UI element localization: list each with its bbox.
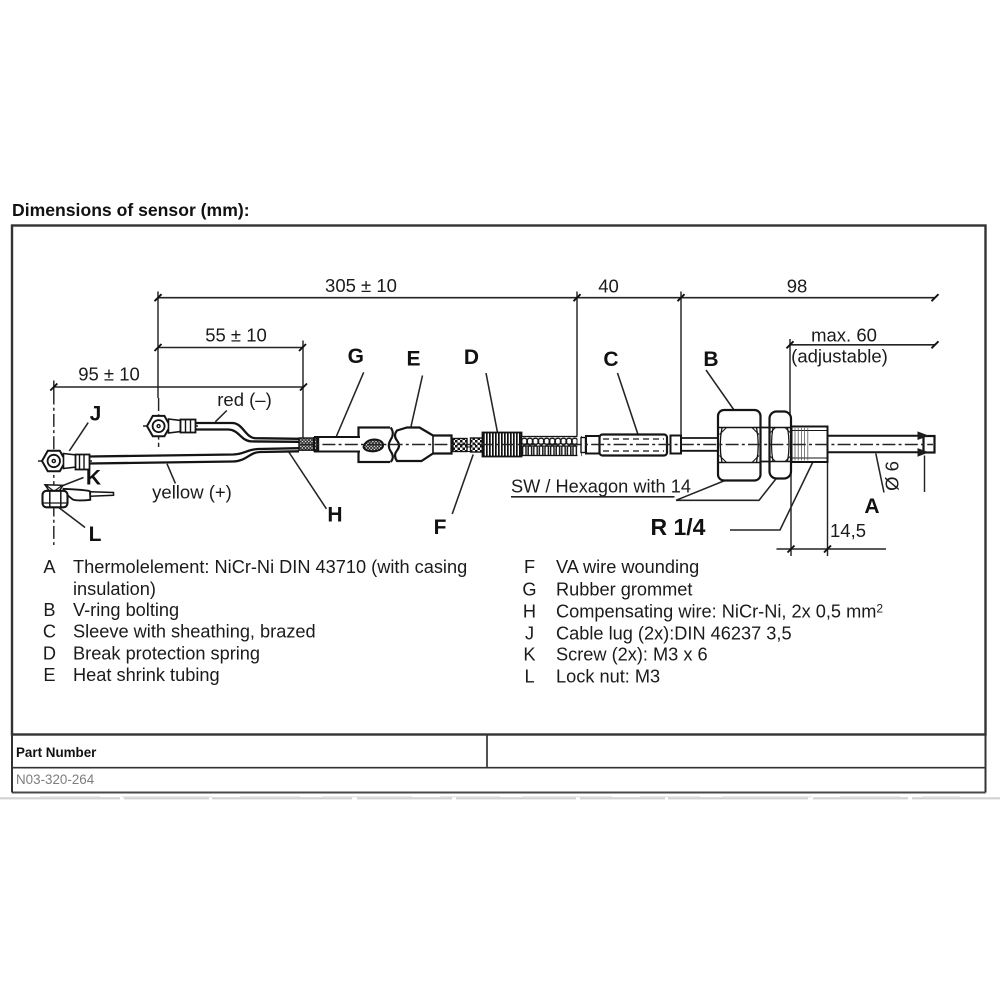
svg-text:(adjustable): (adjustable): [791, 346, 888, 367]
svg-text:98: 98: [787, 276, 808, 297]
svg-text:Cable lug (2x):DIN 46237 3,5: Cable lug (2x):DIN 46237 3,5: [556, 624, 792, 644]
svg-text:SW / Hexagon with 14: SW / Hexagon with 14: [511, 477, 691, 497]
svg-text:R 1/4: R 1/4: [651, 514, 706, 540]
svg-text:V-ring bolting: V-ring bolting: [73, 600, 179, 620]
svg-text:K: K: [523, 645, 535, 665]
svg-text:J: J: [525, 624, 534, 644]
svg-text:95 ± 10: 95 ± 10: [78, 364, 140, 385]
svg-text:B: B: [703, 348, 718, 371]
svg-text:insulation): insulation): [73, 579, 156, 599]
svg-text:Heat shrink tubing: Heat shrink tubing: [73, 665, 220, 685]
svg-text:C: C: [603, 348, 618, 371]
svg-text:Rubber grommet: Rubber grommet: [556, 580, 692, 600]
svg-text:Thermolelement: NiCr-Ni DIN 43: Thermolelement: NiCr-Ni DIN 43710 (with …: [73, 557, 467, 577]
svg-text:G: G: [348, 345, 364, 368]
svg-text:Compensating wire: NiCr-Ni, 2x: Compensating wire: NiCr-Ni, 2x 0,5 mm2: [556, 602, 883, 622]
svg-text:L: L: [524, 667, 534, 687]
svg-text:F: F: [434, 516, 447, 539]
svg-text:55 ± 10: 55 ± 10: [205, 325, 267, 346]
svg-text:L: L: [89, 523, 102, 546]
svg-text:40: 40: [598, 276, 619, 297]
svg-text:B: B: [43, 600, 55, 620]
svg-text:D: D: [464, 346, 479, 369]
svg-text:max. 60: max. 60: [811, 325, 877, 346]
svg-text:A: A: [43, 557, 56, 577]
svg-text:H: H: [327, 504, 342, 527]
svg-text:Dimensions of sensor (mm):: Dimensions of sensor (mm):: [12, 200, 250, 220]
svg-text:C: C: [43, 622, 56, 642]
svg-text:A: A: [864, 495, 879, 518]
svg-text:E: E: [406, 348, 420, 371]
svg-text:red (–): red (–): [217, 389, 272, 410]
svg-text:Ø 6: Ø 6: [882, 461, 903, 491]
svg-text:J: J: [90, 403, 102, 426]
svg-text:E: E: [43, 665, 55, 685]
svg-text:Screw (2x): M3 x 6: Screw (2x): M3 x 6: [556, 645, 708, 665]
svg-text:H: H: [523, 602, 536, 622]
svg-text:G: G: [522, 580, 536, 600]
svg-text:D: D: [43, 644, 56, 664]
svg-text:F: F: [524, 557, 535, 577]
svg-text:Sleeve with sheathing, brazed: Sleeve with sheathing, brazed: [73, 622, 316, 642]
svg-text:Part Number: Part Number: [16, 745, 97, 760]
svg-text:K: K: [86, 467, 101, 490]
svg-text:305 ± 10: 305 ± 10: [325, 275, 397, 296]
svg-text:VA wire wounding: VA wire wounding: [556, 557, 699, 577]
svg-text:N03-320-264: N03-320-264: [16, 772, 95, 787]
svg-text:Lock nut: M3: Lock nut: M3: [556, 667, 660, 687]
svg-text:14,5: 14,5: [830, 520, 866, 541]
svg-text:yellow (+): yellow (+): [152, 482, 232, 503]
svg-text:Break protection spring: Break protection spring: [73, 644, 260, 664]
